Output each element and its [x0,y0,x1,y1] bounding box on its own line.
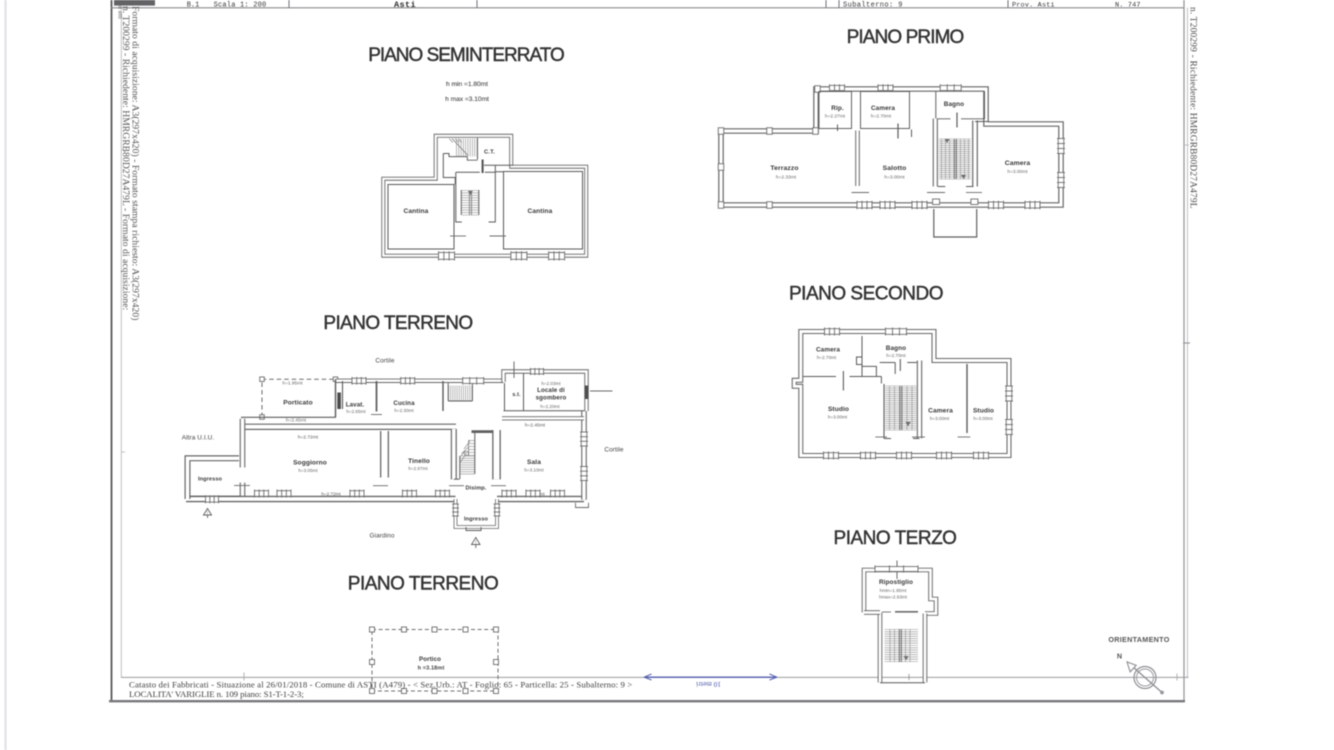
svg-text:h=3.10mt: h=3.10mt [524,468,544,473]
svg-text:h=3.00mt: h=3.00mt [1007,169,1028,175]
svg-text:sgombero: sgombero [536,395,567,402]
svg-text:h=2.72mt: h=2.72mt [321,492,341,497]
svg-text:h=2.27mt: h=2.27mt [825,114,846,120]
svg-text:Scala 1: 200: Scala 1: 200 [214,1,267,9]
svg-text:Ingresso: Ingresso [198,477,223,483]
svg-text:LOCALITA' VARIGLIE n. 109 pian: LOCALITA' VARIGLIE n. 109 piano: S1-T-1-… [129,689,304,699]
svg-text:h=2.33mt: h=2.33mt [776,175,797,181]
svg-text:h=2.97mt: h=2.97mt [408,466,428,471]
svg-text:Cortile: Cortile [375,358,395,365]
svg-text:Giardino: Giardino [370,533,395,540]
svg-text:Locale di: Locale di [537,387,565,394]
svg-text:h=2.70mt: h=2.70mt [817,355,837,360]
svg-text:N: N [1117,652,1122,661]
svg-text:Cantina: Cantina [404,208,429,215]
svg-text:Ripostiglio: Ripostiglio [879,579,913,586]
svg-text:Camera: Camera [1005,160,1031,167]
svg-text:h=3.00mt: h=3.00mt [973,416,993,421]
svg-text:Camera: Camera [871,105,895,112]
svg-text:h=2.45mt: h=2.45mt [525,422,546,428]
svg-text:h min =1.80mt: h min =1.80mt [446,81,488,88]
svg-text:h=2.70mt: h=2.70mt [886,353,906,358]
svg-text:PIANO PRIMO: PIANO PRIMO [847,27,964,48]
svg-text:h max =3.10mt: h max =3.10mt [445,96,489,103]
svg-text:Studio: Studio [828,406,849,413]
svg-text:Lavat.: Lavat. [346,402,365,409]
svg-text:PIANO SEMINTERRATO: PIANO SEMINTERRATO [368,45,564,66]
svg-text:Soggiorno: Soggiorno [293,460,327,467]
svg-text:Subalterno: 9: Subalterno: 9 [843,1,903,9]
svg-text:Asti: Asti [394,0,416,10]
svg-text:Salotto: Salotto [883,165,907,172]
svg-text:!: ! [475,540,476,545]
svg-text:h=2.30mt: h=2.30mt [394,408,414,413]
svg-text:Portico: Portico [419,656,441,663]
svg-text:Bagno: Bagno [944,101,964,108]
svg-text:Sala: Sala [527,459,541,466]
svg-text:hmax=2.93mt: hmax=2.93mt [879,594,908,599]
svg-text:Altra U.I.U.: Altra U.I.U. [182,435,215,442]
svg-text:PIANO TERZO: PIANO TERZO [834,528,957,549]
svg-text:n. T200299 - Richiedente: HMRG: n. T200299 - Richiedente: HMRGRB80D27A47… [1188,7,1198,209]
svg-text:s.t.: s.t. [512,392,521,398]
svg-text:Formato di acquisizione: A3(29: Formato di acquisizione: A3(297x420) - F… [130,6,141,320]
svg-text:Catasto dei Fabbricati - Situa: Catasto dei Fabbricati - Situazione al 2… [129,679,632,689]
svg-text:h =3.18mt: h =3.18mt [418,665,445,671]
svg-text:C.T.: C.T. [484,150,495,156]
svg-text:h=3.00mt: h=3.00mt [930,416,950,421]
svg-text:h=2.65mt: h=2.65mt [346,409,366,414]
svg-text:10 metri: 10 metri [696,680,721,688]
svg-text:Tinello: Tinello [408,458,430,465]
svg-text:Cucina: Cucina [393,400,415,407]
svg-text:Camera: Camera [816,347,840,354]
svg-text:Porticato: Porticato [283,400,312,407]
svg-text:PIANO TERRENO: PIANO TERRENO [348,574,498,595]
svg-text:Camera: Camera [928,408,953,415]
svg-text:h=3.00mt: h=3.00mt [884,175,905,181]
svg-text:PIANO TERRENO: PIANO TERRENO [323,313,472,334]
svg-text:Cantina: Cantina [528,208,553,215]
svg-text:Disimp.: Disimp. [466,486,487,492]
svg-text:h=1.95mt: h=1.95mt [282,381,303,387]
svg-text:ORIENTAMENTO: ORIENTAMENTO [1108,635,1169,644]
svg-text:hmin=1.95mt: hmin=1.95mt [880,588,907,593]
svg-text:Rip.: Rip. [831,105,844,112]
svg-text:h=2.70mt: h=2.70mt [871,114,892,120]
svg-text:PIANO SECONDO: PIANO SECONDO [789,284,943,305]
svg-text:Terrazzo: Terrazzo [770,165,798,172]
svg-text:h=3.05mt: h=3.05mt [298,468,318,473]
svg-text:Bagno: Bagno [886,345,906,352]
svg-text:Prov. Asti: Prov. Asti [1012,1,1055,9]
svg-text:!: ! [207,510,208,515]
svg-text:B.1: B.1 [187,1,200,9]
svg-text:h=2.72mt: h=2.72mt [298,434,319,440]
svg-text:Studio: Studio [973,408,994,415]
svg-text:N. 747: N. 747 [1115,1,1141,9]
svg-text:h=3.00mt: h=3.00mt [828,415,848,420]
svg-text:n. T200299 - Richiedente: HMRG: n. T200299 - Richiedente: HMRGRB80D27A47… [120,6,131,310]
svg-text:Ingresso: Ingresso [464,517,489,523]
svg-text:Cortile: Cortile [604,447,624,454]
svg-text:h=2.20mt: h=2.20mt [540,404,560,409]
svg-text:h=2.45mt: h=2.45mt [286,418,307,424]
svg-text:h=2.03mt: h=2.03mt [541,381,561,386]
